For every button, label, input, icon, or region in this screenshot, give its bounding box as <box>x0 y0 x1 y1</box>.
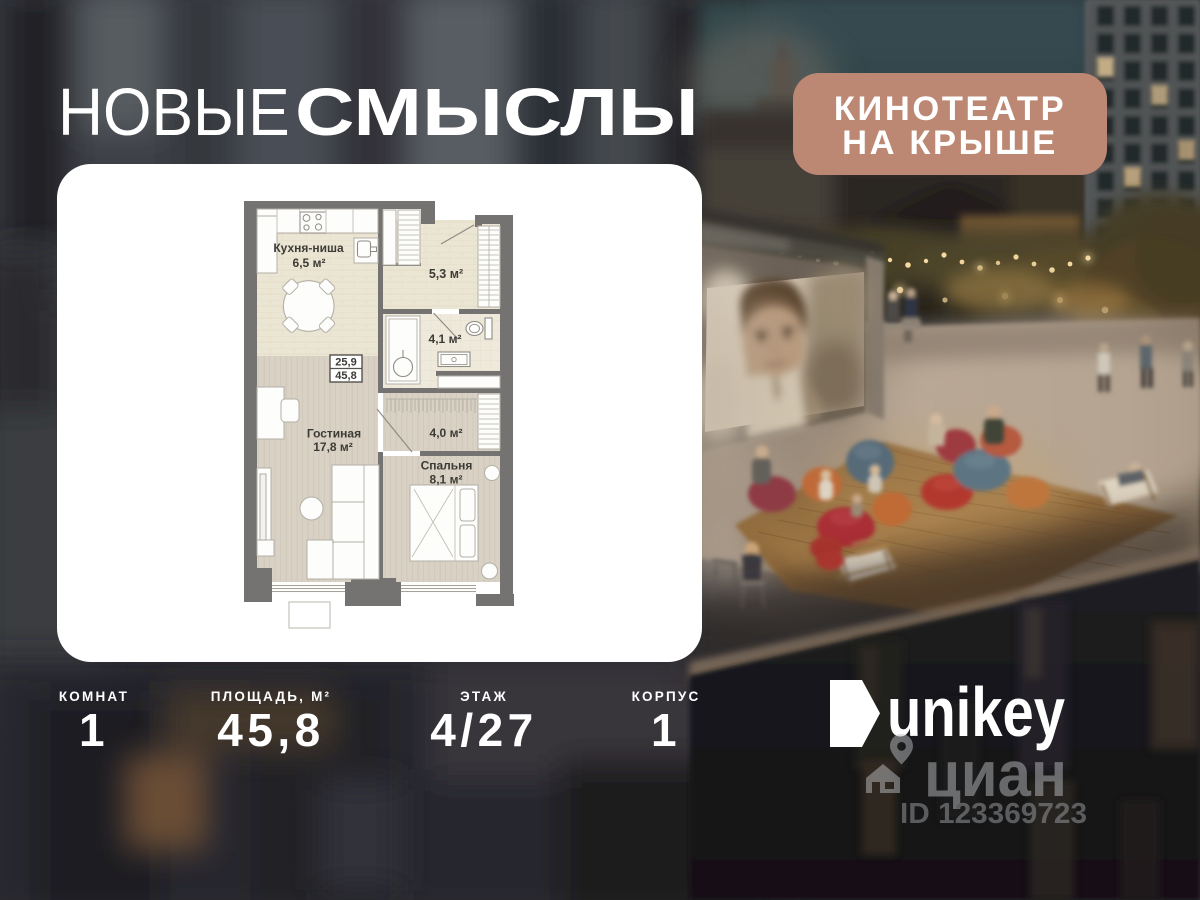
svg-text:25,9: 25,9 <box>335 357 356 369</box>
svg-text:4,0 м²: 4,0 м² <box>430 426 463 440</box>
svg-text:4,1 м²: 4,1 м² <box>429 332 462 346</box>
svg-text:8,1 м²: 8,1 м² <box>430 473 463 487</box>
svg-text:17,8 м²: 17,8 м² <box>313 440 353 454</box>
svg-text:5,3 м²: 5,3 м² <box>429 267 463 281</box>
svg-text:Кухня-ниша: Кухня-ниша <box>273 241 344 255</box>
svg-text:45,8: 45,8 <box>335 370 356 382</box>
svg-text:ID 123369723: ID 123369723 <box>900 798 1087 830</box>
svg-text:Спальня: Спальня <box>421 459 473 473</box>
svg-text:Гостиная: Гостиная <box>307 427 361 441</box>
svg-text:6,5 м²: 6,5 м² <box>293 256 326 270</box>
